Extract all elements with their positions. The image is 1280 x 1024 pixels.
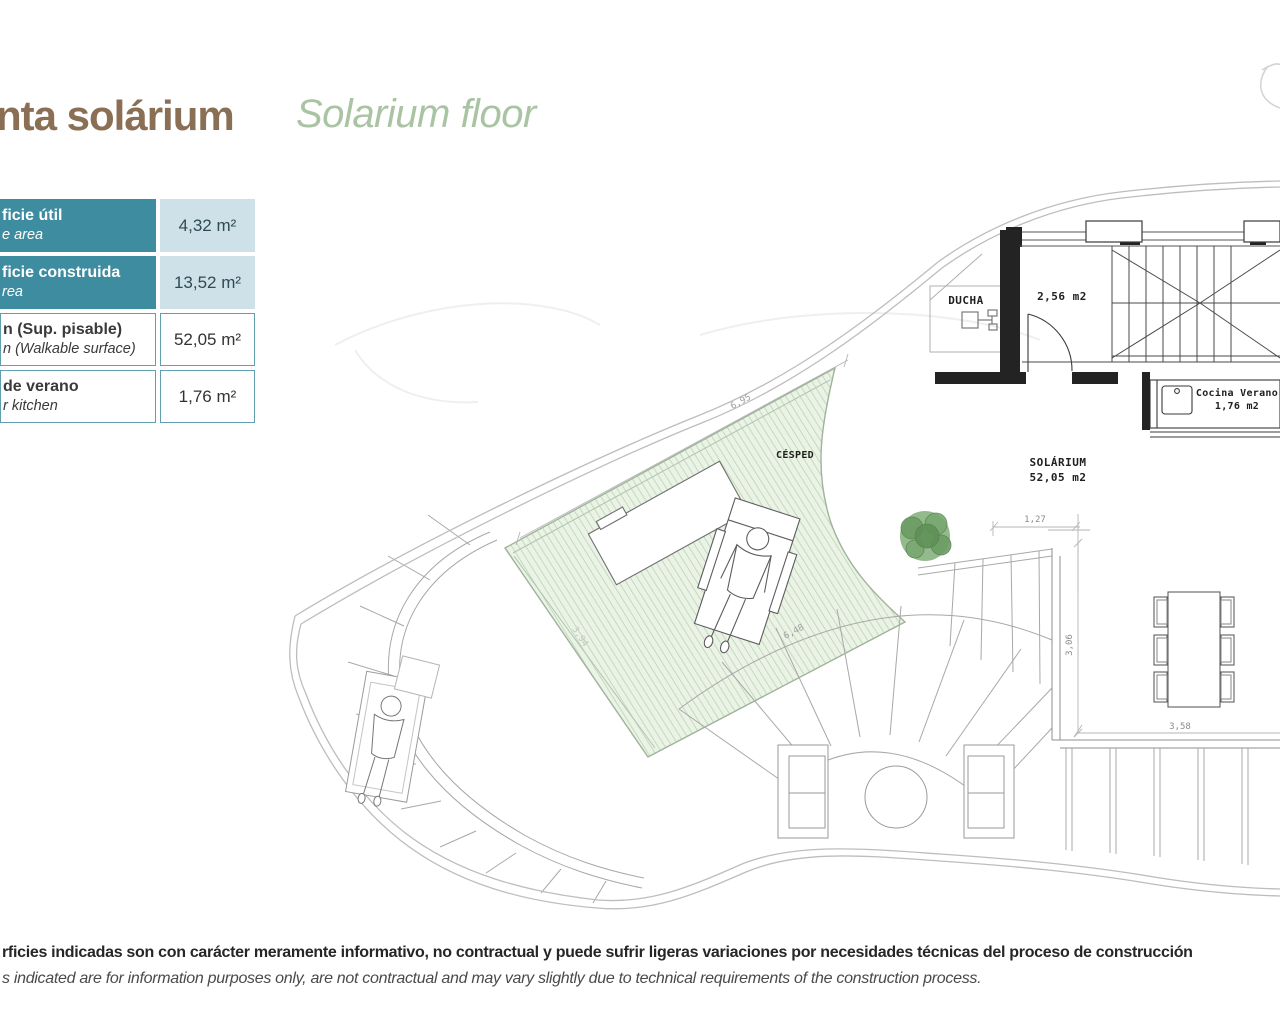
right-deck-planks — [918, 549, 1052, 684]
dim-label-127: 1,27 — [1024, 515, 1046, 525]
footer-disclaimer-english: s indicated are for information purposes… — [2, 970, 981, 988]
label-cocina-2: 1,76 m2 — [1215, 401, 1259, 412]
railing-lines — [1020, 232, 1280, 246]
tree — [900, 511, 951, 561]
dim-label-358: 3,58 — [1169, 722, 1191, 732]
round-table — [865, 766, 927, 828]
footer-disclaimer-spanish: rficies indicadas son con carácter meram… — [2, 944, 1193, 962]
label-solarium-2: 52,05 m2 — [1030, 471, 1087, 484]
stairs — [1022, 246, 1280, 362]
floor-plan-drawing: 1,27 3,06 3,58 6,95 6,48 3,94 — [0, 0, 1280, 1024]
door — [1028, 314, 1072, 372]
label-room-area: 2,56 m2 — [1037, 290, 1087, 303]
ghost-lines — [335, 303, 1040, 402]
dim-label-695: 6,95 — [729, 393, 753, 412]
label-ducha: DUCHA — [948, 294, 984, 307]
room-walls — [935, 227, 1266, 384]
summer-kitchen — [1142, 372, 1280, 437]
sink-icon — [1162, 386, 1192, 414]
dining-platform — [1052, 548, 1280, 865]
patio-set — [778, 745, 1014, 838]
label-cesped: CÉSPED — [776, 448, 814, 461]
dining-set — [1154, 592, 1234, 707]
logo-fragment — [1261, 64, 1280, 108]
label-cocina-1: Cocina Verano — [1196, 387, 1278, 399]
dining-table — [1168, 592, 1220, 707]
label-solarium-1: SOLÁRIUM — [1030, 456, 1087, 469]
grass-area — [505, 368, 905, 757]
dim-label-306: 3,06 — [1065, 634, 1075, 656]
